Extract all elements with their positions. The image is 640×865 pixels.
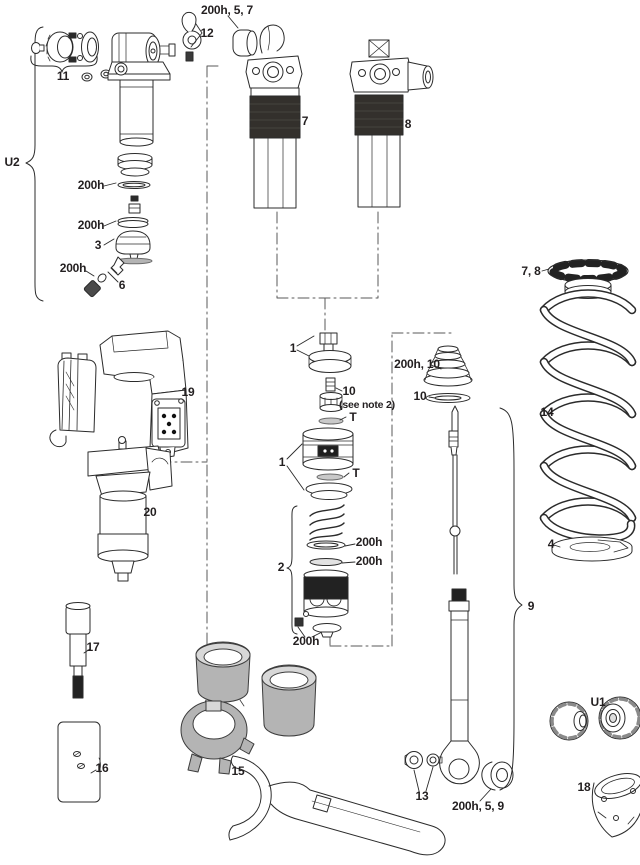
t-washer-upper [319, 418, 343, 424]
aircan-oring-200h [118, 182, 150, 189]
label-part-19: 19 [182, 386, 195, 398]
wrench [229, 756, 445, 855]
part-4-spring-clip [552, 537, 632, 561]
label-part-6: 6 [119, 279, 125, 291]
label-bumper-top: 200h, 5, 7 [201, 4, 253, 16]
label-u2: U2 [5, 156, 20, 168]
u2-bracket [26, 27, 43, 301]
label-200h-b3: 200h [293, 635, 320, 647]
label-part-12: 12 [201, 27, 214, 39]
part-2-rebound-stack [295, 505, 348, 637]
label-part-13: 13 [416, 790, 429, 802]
battery [50, 353, 96, 447]
part-1-valve-cap [309, 333, 351, 373]
part-18-drum [592, 769, 640, 837]
label-part-14: 14 [541, 406, 554, 418]
label-part-1-upper: 1 [290, 342, 296, 354]
label-t-upper: T [349, 411, 356, 423]
label-part-18: 18 [578, 781, 591, 793]
label-part-16: 16 [96, 762, 109, 774]
label-u1: U1 [591, 696, 606, 708]
label-part-1-lower: 1 [279, 456, 285, 468]
label-200h-b1: 200h [356, 536, 383, 548]
diagram-line-art [0, 0, 640, 865]
label-part-10-mid: 10 [343, 385, 356, 397]
label-200h-a2: 200h [78, 219, 105, 231]
needle-shaft [449, 406, 460, 574]
part-15-ring-set [181, 642, 316, 774]
part-13-nuts [405, 752, 442, 769]
eyelet-bushing-200h-5-9 [482, 762, 513, 790]
label-part-2: 2 [278, 561, 284, 573]
label-200h-a1: 200h [78, 179, 105, 191]
label-part-7: 7 [302, 115, 308, 127]
part-1-piston-assembly [303, 428, 353, 500]
label-note-2: (see note 2) [339, 400, 395, 411]
label-part-9: 9 [528, 600, 534, 612]
label-part-15: 15 [232, 765, 245, 777]
module-19 [100, 331, 188, 458]
aircan-seal-200h [118, 218, 148, 228]
label-7-8: 7, 8 [521, 265, 540, 277]
small-valve-parts [129, 196, 140, 213]
part-3-air-piston [116, 231, 152, 264]
label-part-3: 3 [95, 239, 101, 251]
label-part-10-right: 10 [414, 390, 427, 402]
label-part-20: 20 [144, 506, 157, 518]
part-12-lever [182, 12, 201, 61]
label-200h-5-9: 200h, 5, 9 [452, 800, 504, 812]
part-11-knob-group [31, 32, 111, 81]
label-part-17: 17 [87, 641, 100, 653]
label-200h-b2: 200h [356, 555, 383, 567]
part-9-bracket [500, 408, 522, 790]
label-t-lower: T [352, 467, 359, 479]
damper-body [440, 589, 480, 784]
part-2-bracket [287, 506, 297, 634]
label-200h-10: 200h, 10 [394, 358, 440, 370]
left-shock-unit [108, 33, 175, 146]
exploded-diagram-page: 200h, 5, 7 12 11 U2 200h 200h 3 200h 6 7… [0, 0, 640, 865]
label-200h-a3: 200h [60, 262, 87, 274]
part-14-coil-spring [544, 294, 632, 539]
aircan-top-cap [118, 154, 152, 177]
part-8-shock [350, 40, 433, 207]
label-part-11: 11 [57, 70, 69, 82]
label-part-4: 4 [548, 538, 554, 550]
part-16-block [58, 722, 101, 802]
module-20 [88, 437, 172, 582]
label-part-8: 8 [405, 118, 411, 130]
bumper-200h-5-7 [233, 30, 257, 56]
